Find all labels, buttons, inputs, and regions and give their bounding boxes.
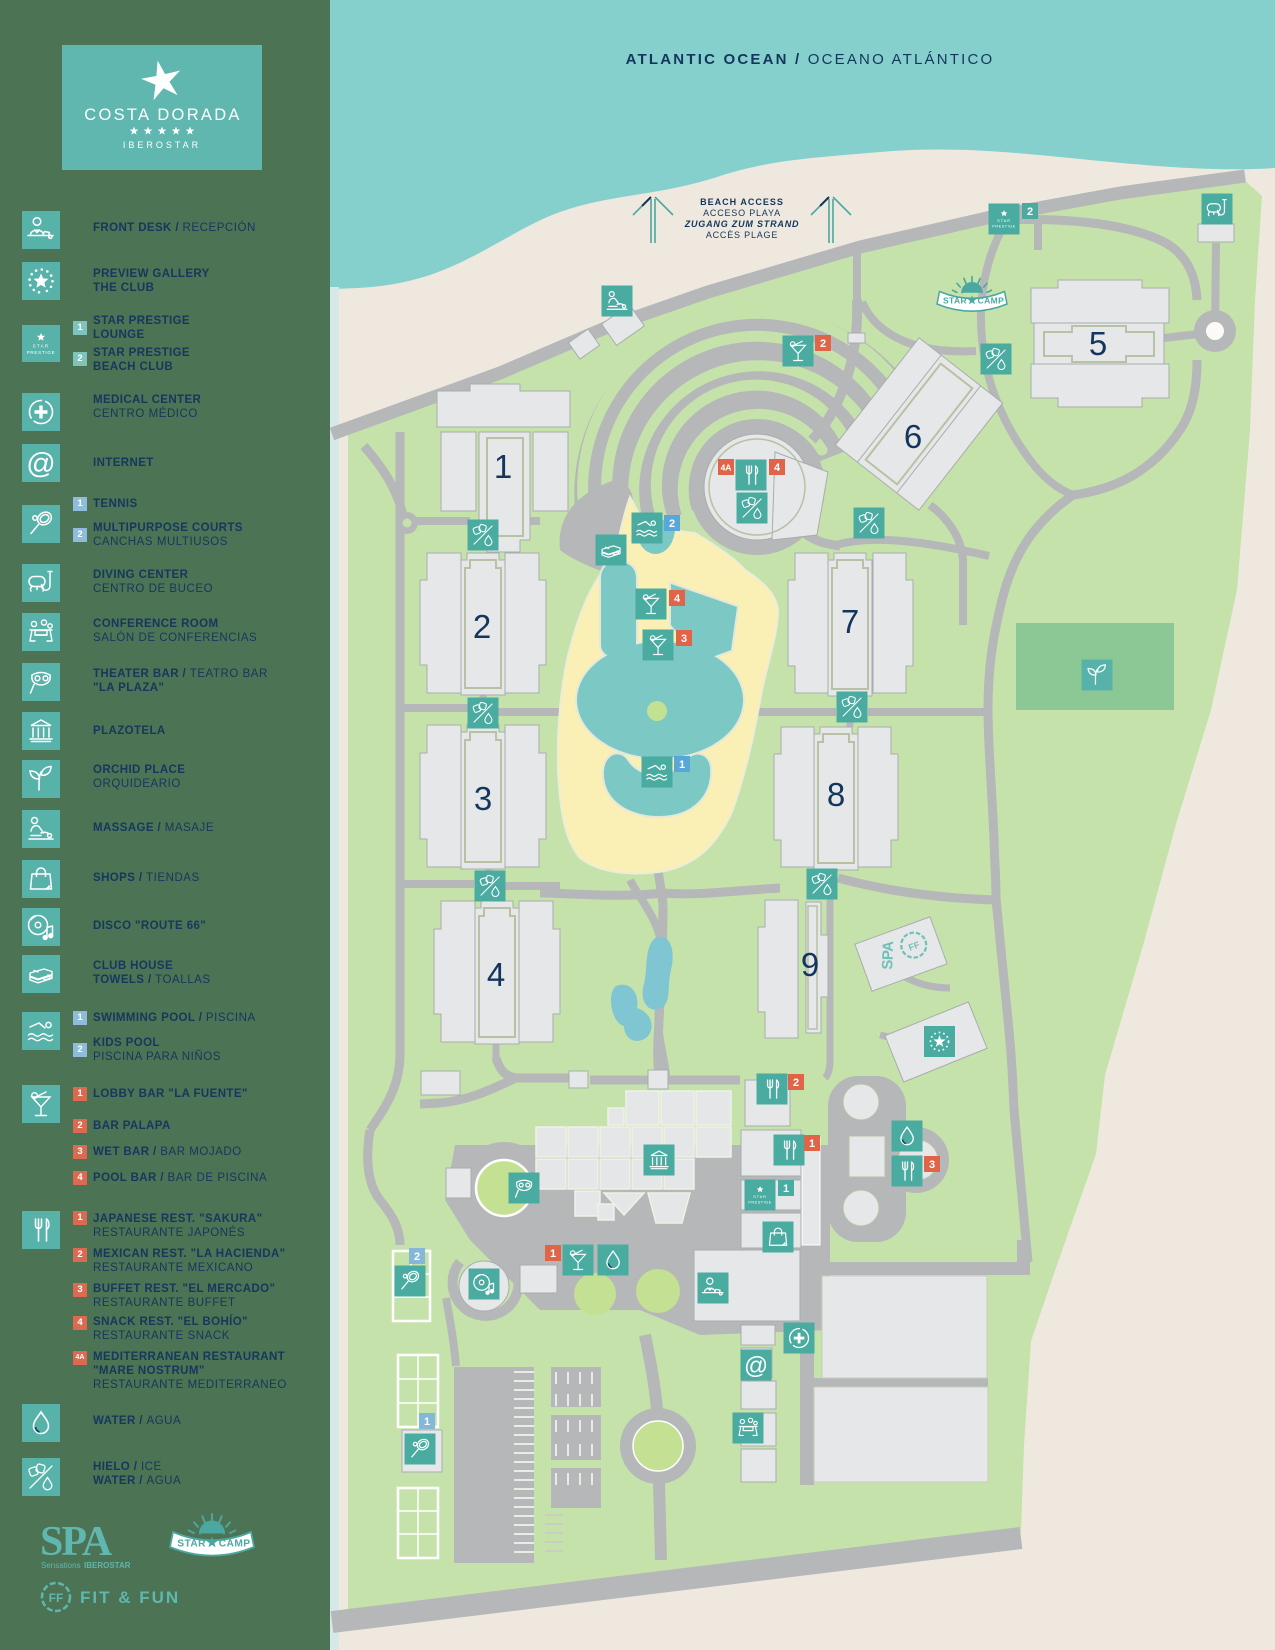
svg-text:3: 3 [681, 633, 687, 645]
svg-text:2: 2 [793, 1077, 799, 1089]
svg-text:6: 6 [904, 418, 922, 455]
svg-text:ACCESO PLAYA: ACCESO PLAYA [703, 208, 781, 218]
svg-text:9: 9 [801, 946, 819, 983]
svg-text:IBEROSTAR: IBEROSTAR [84, 1561, 130, 1570]
svg-text:FIT & FUN: FIT & FUN [80, 1588, 180, 1607]
svg-text:Sensations: Sensations [41, 1561, 81, 1570]
svg-text:2: 2 [473, 608, 491, 645]
svg-text:1: 1 [809, 1138, 815, 1150]
svg-text:2: 2 [669, 518, 675, 530]
svg-text:8: 8 [827, 776, 845, 813]
svg-text:4: 4 [674, 593, 681, 605]
svg-text:ACCÈS PLAGE: ACCÈS PLAGE [706, 230, 778, 240]
svg-text:1: 1 [783, 1183, 789, 1195]
svg-text:COSTA DORADA: COSTA DORADA [84, 106, 241, 124]
svg-text:4: 4 [487, 956, 505, 993]
svg-text:1: 1 [494, 448, 512, 485]
svg-text:2: 2 [414, 1251, 420, 1263]
svg-text:3: 3 [474, 780, 492, 817]
svg-text:BEACH ACCESS: BEACH ACCESS [700, 197, 784, 207]
svg-text:7: 7 [841, 603, 859, 640]
svg-text:FF: FF [49, 1591, 64, 1605]
svg-text:4: 4 [774, 462, 781, 474]
svg-text:SPA: SPA [879, 940, 897, 969]
svg-text:ATLANTIC OCEAN / OCEANO ATLÁNT: ATLANTIC OCEAN / OCEANO ATLÁNTICO [626, 51, 995, 68]
svg-text:1: 1 [550, 1248, 556, 1260]
svg-text:2: 2 [820, 338, 826, 350]
svg-text:4A: 4A [721, 463, 732, 473]
svg-text:2: 2 [1027, 206, 1033, 218]
svg-text:5: 5 [1089, 325, 1107, 362]
svg-text:SPA: SPA [40, 1519, 113, 1565]
svg-text:1: 1 [679, 759, 685, 771]
svg-text:ZUGANG ZUM STRAND: ZUGANG ZUM STRAND [684, 219, 800, 229]
svg-text:3: 3 [929, 1159, 935, 1171]
svg-text:IBEROSTAR: IBEROSTAR [123, 140, 201, 150]
svg-text:1: 1 [424, 1416, 430, 1428]
